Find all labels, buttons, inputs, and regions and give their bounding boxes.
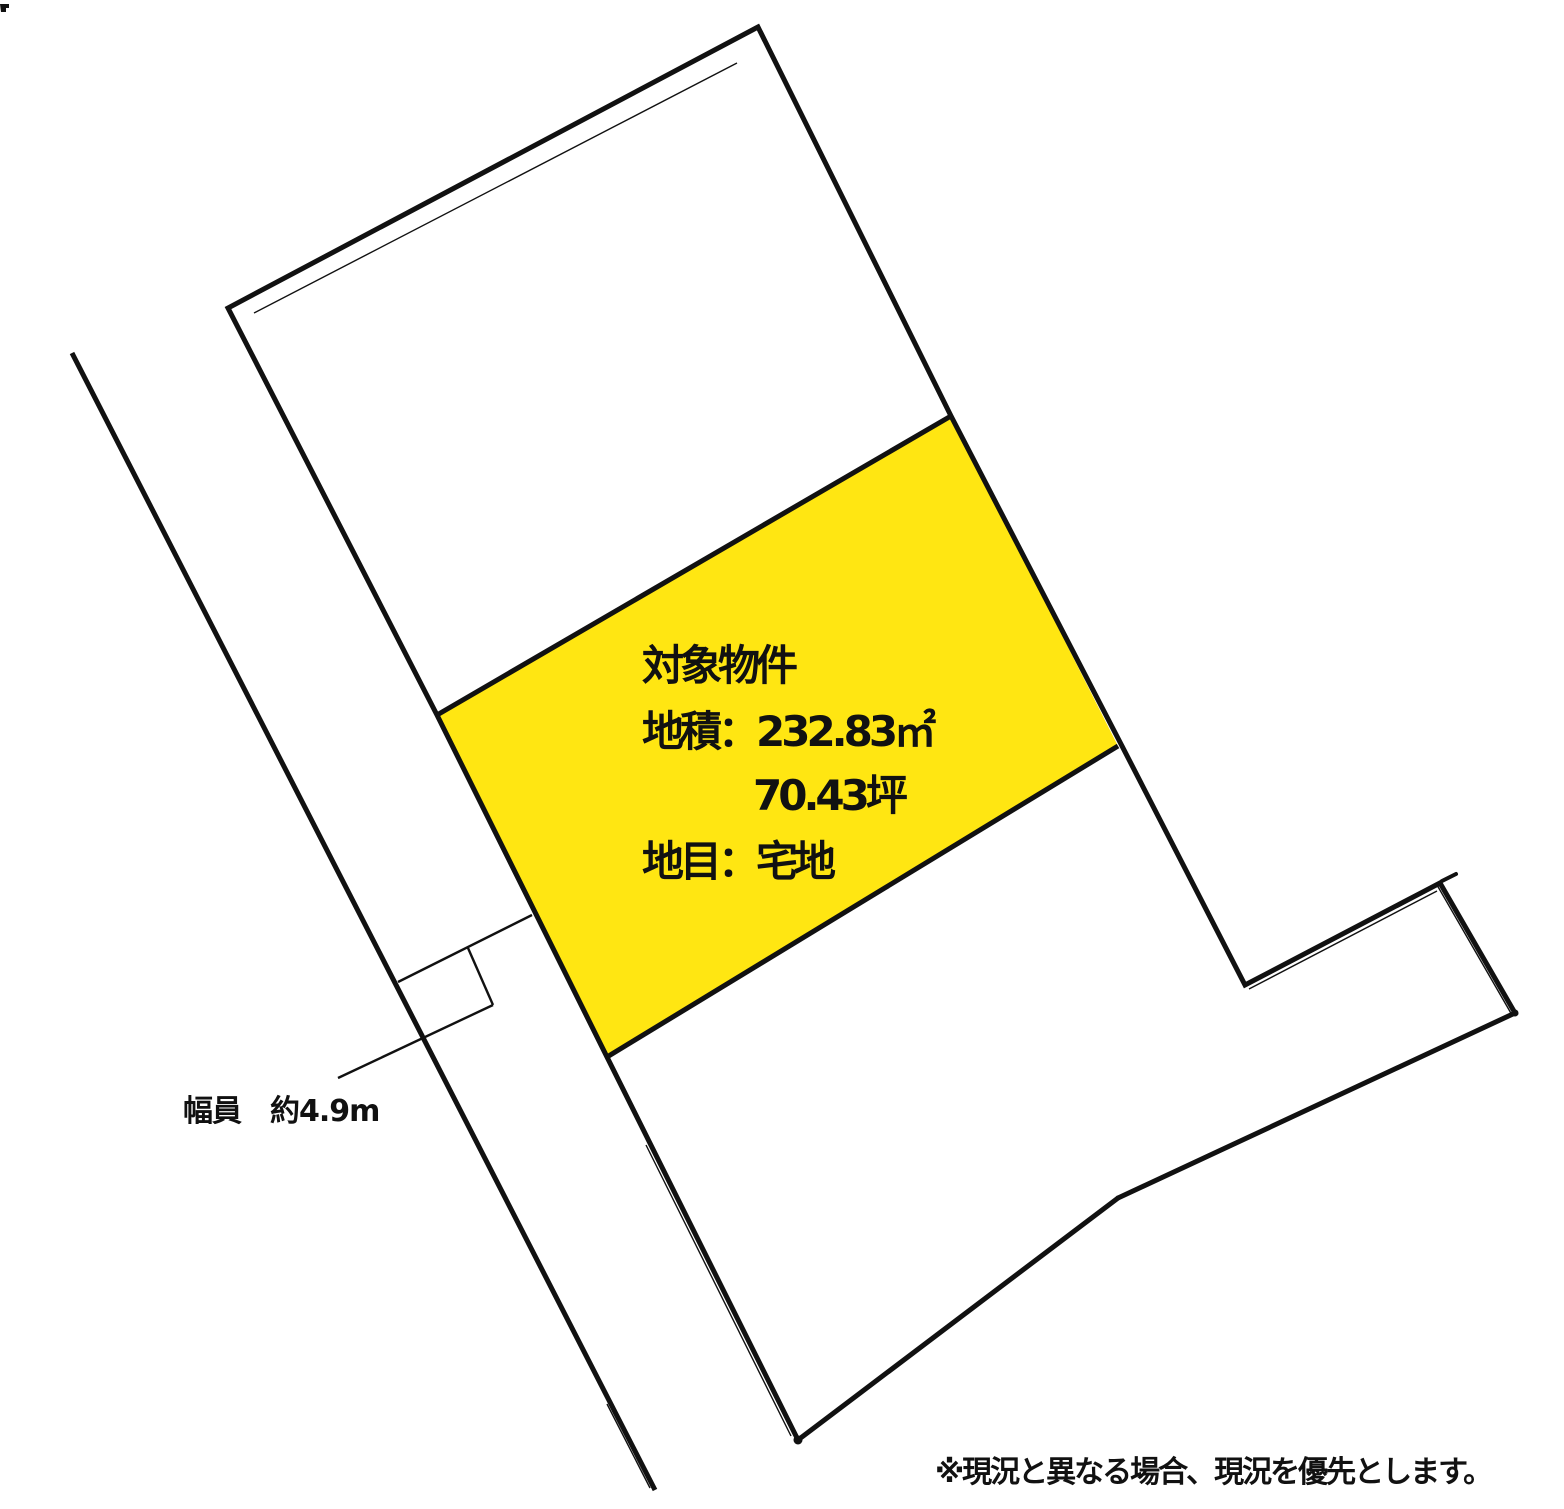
sketch-double-line-road-edge [607,1404,650,1488]
land-plot-diagram: 対象物件 地積：232.83㎡ 70.43坪 地目：宅地 幅員 約4.9m ※現… [0,0,1564,1509]
corner-dot-bottom-bend [1116,1196,1121,1201]
target-parcel-title: 対象物件 [642,641,797,690]
road-width-measure-line [398,915,532,982]
land-category-label: 地目：宅地 [642,837,836,886]
corner-overshoot-mark [1442,874,1456,881]
sketch-double-line-step-right [1437,885,1512,1015]
corner-dot-bottom-right [1512,1010,1519,1017]
sketch-double-line-step-top [1249,891,1437,989]
land-area-tsubo-label: 70.43坪 [753,771,907,820]
road-width-label: 幅員 約4.9m [183,1094,379,1129]
top-left-tick-mark [0,4,9,12]
sketch-double-line-left-edge [646,1145,791,1436]
road-width-measure-tick [468,948,493,1005]
plot-drawing-canvas: 対象物件 地積：232.83㎡ 70.43坪 地目：宅地 幅員 約4.9m ※現… [0,0,1564,1509]
disclaimer-note: ※現況と異なる場合、現況を優先とします。 [935,1455,1491,1490]
land-area-sqm-label: 地積：232.83㎡ [642,707,936,756]
corner-dot-bottom-left [794,1436,803,1445]
sketch-double-line-top-edge [254,63,737,313]
road-width-leader-line [338,1005,493,1078]
